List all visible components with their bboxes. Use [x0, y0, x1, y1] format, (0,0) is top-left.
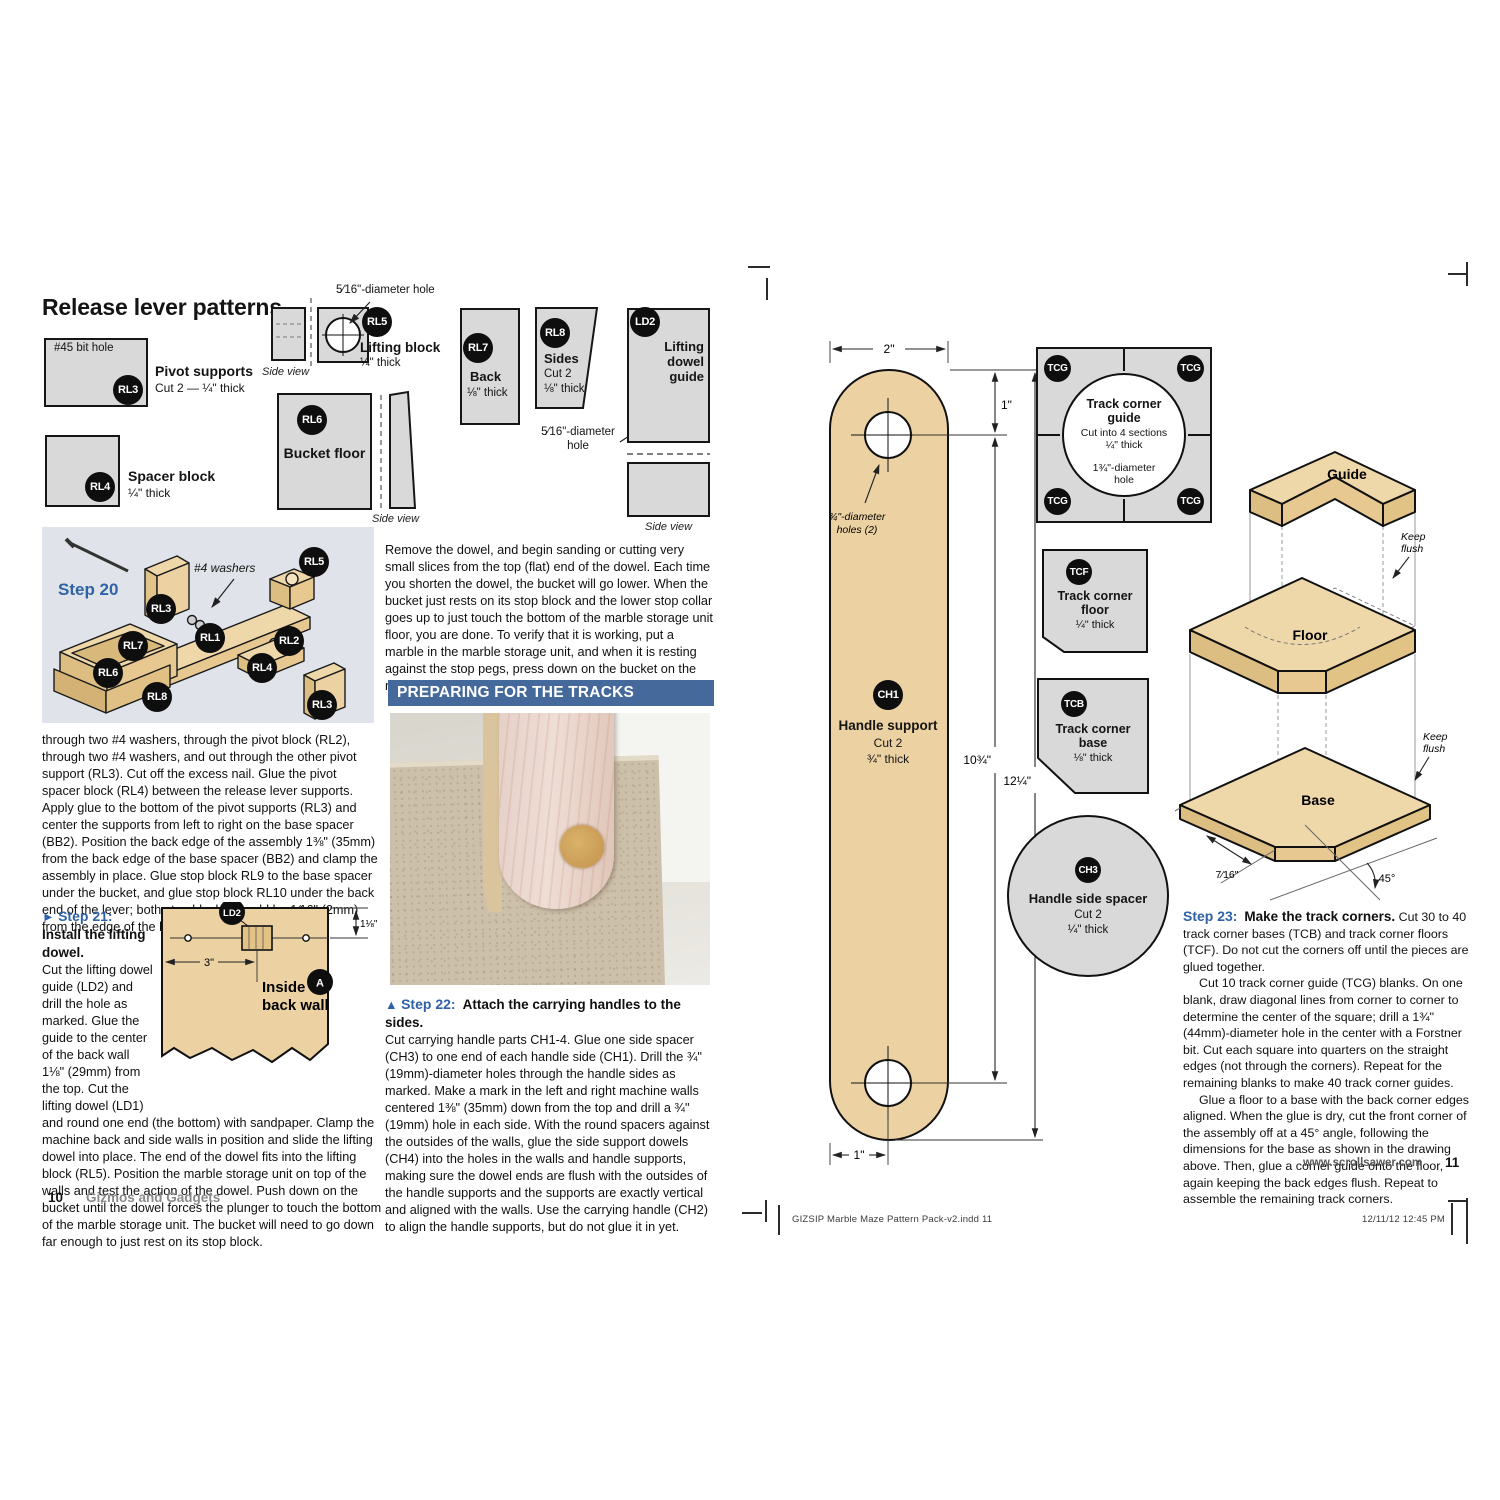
- slug-divider-right: [1451, 1203, 1453, 1235]
- step22-body: Cut carrying handle parts CH1-4. Glue on…: [385, 1033, 709, 1234]
- tcg-spec-1: Cut into 4 sections: [1064, 427, 1184, 439]
- iso-guide-label: Guide: [1327, 466, 1367, 482]
- step23-p2: Cut 10 track corner guide (TCG) blanks. …: [1183, 975, 1475, 1091]
- step21-wall-label-2: back wall: [262, 997, 329, 1014]
- rl5-hole-label: 5⁄16"-diameter hole: [336, 284, 496, 296]
- tcf-badge: TCF: [1066, 559, 1092, 585]
- step20-badge-rl3a: RL3: [146, 594, 176, 624]
- tcb-name: Track cornerbase: [1037, 722, 1149, 750]
- rl8-badge: RL8: [540, 318, 570, 348]
- iso-guide-piece: [1250, 452, 1415, 526]
- ch1-holes-label-1: ¾"-diameter: [829, 511, 886, 523]
- page-right: 2" 1" 10¾" 12¼": [755, 260, 1483, 1200]
- rl5-name: Lifting block: [360, 340, 440, 356]
- rl4-name: Spacer block: [128, 468, 215, 484]
- rl7-box: [460, 308, 520, 425]
- ch1-dim-top: 2": [884, 342, 895, 356]
- step20-badge-rl6: RL6: [93, 658, 123, 688]
- step20-panel: Step 20 #4 washers RL5 RL3 RL1 RL2 RL7 R…: [42, 527, 374, 723]
- crop-mark-tr-h: [1448, 273, 1468, 275]
- iso-keep-flush-1a: Keep: [1401, 531, 1426, 543]
- step21-wall-drawing: LD2 3" Inside back wall A 1⅛": [160, 902, 382, 1098]
- step21-wall-label-1: Inside: [262, 979, 305, 996]
- tcg-name: Track cornerguide: [1064, 397, 1184, 425]
- middle-paragraph: Remove the dowel, and begin sanding or c…: [385, 542, 715, 695]
- iso-dim-angle: 45°: [1379, 873, 1396, 885]
- step20-badge-rl1: RL1: [195, 623, 225, 653]
- ch1-thick: ¾" thick: [808, 752, 968, 766]
- tcf-name: Track cornerfloor: [1042, 589, 1148, 617]
- step23-title: Step 23:: [1183, 908, 1237, 924]
- step22-title: Step 22:: [401, 996, 455, 1012]
- crop-mark-br-h: [1448, 1200, 1468, 1202]
- ch1-dim-outer: 12¼": [1003, 774, 1031, 788]
- rl4-spec: ¼" thick: [128, 486, 170, 500]
- dowel-guide-shape: [242, 926, 272, 950]
- crop-mark-tl-v: [766, 278, 768, 300]
- tcg-hole: Track cornerguide Cut into 4 sections ¼"…: [1062, 373, 1186, 497]
- rl6-badge: RL6: [297, 405, 327, 435]
- iso-keep-flush-1b: flush: [1401, 543, 1423, 555]
- ch3-piece: CH3 Handle side spacer Cut 2 ¼" thick: [1007, 815, 1169, 977]
- rl7-name: Back: [470, 370, 501, 385]
- rl5-badge: RL5: [362, 307, 392, 337]
- step21-marker: ►: [42, 910, 55, 924]
- ch1-holes-label-2: holes (2): [837, 524, 878, 536]
- ch3-badge: CH3: [1075, 857, 1101, 883]
- rl5-spec: ¼" thick: [360, 357, 401, 371]
- rl3-name: Pivot supports: [155, 363, 253, 379]
- rl5-side-view-label: Side view: [262, 366, 309, 378]
- ch1-drawing: 2" 1" 10¾" 12¼": [795, 335, 1055, 1180]
- crop-mark-tr-v: [1466, 262, 1468, 286]
- tcg-badge-tr: TCG: [1177, 355, 1204, 382]
- tcg-name-1: Track corner: [1086, 397, 1161, 411]
- tcg-hole-label-2: hole: [1114, 474, 1134, 486]
- step20-badge-rl8: RL8: [142, 682, 172, 712]
- tcf-piece: TCF Track cornerfloor ¼" thick: [1042, 549, 1148, 653]
- wall-hole-right: [303, 935, 309, 941]
- step21-subtitle: Install the lifting dowel.: [42, 927, 146, 960]
- ch1-dim-upper: 1": [1001, 398, 1012, 412]
- step23-subtitle: Make the track corners.: [1244, 909, 1395, 924]
- iso-floor-label: Floor: [1293, 627, 1329, 643]
- tcb-badge: TCB: [1061, 691, 1087, 717]
- step21-dim-3in: 3": [204, 957, 214, 969]
- ld2-hole-label-2: hole: [532, 440, 624, 452]
- ch3-name: Handle side spacer: [1009, 891, 1167, 906]
- slug-divider-left: [778, 1205, 780, 1235]
- rl4-badge: RL4: [85, 472, 115, 502]
- iso-keep-flush-2b: flush: [1423, 743, 1445, 755]
- tcg-name-2: guide: [1107, 411, 1140, 425]
- tcg-spec-2: ¼" thick: [1064, 439, 1184, 451]
- print-timestamp: 12/11/12 12:45 PM: [1295, 1214, 1445, 1225]
- tcb-name-1: Track corner: [1055, 722, 1130, 736]
- rl8-spec-cut: Cut 2: [544, 368, 572, 382]
- tcg-hole-label-1: 1¾"-diameter: [1093, 462, 1156, 474]
- rl3-hole-label: #45 bit hole: [54, 342, 113, 354]
- page-number-right: 11: [1445, 1155, 1459, 1170]
- step20-label: Step 20: [58, 580, 118, 600]
- step20-badge-rl7: RL7: [118, 631, 148, 661]
- website-url: www.scrollsawer.com: [1303, 1157, 1422, 1169]
- ld2-name: Lifting dowel guide: [640, 340, 704, 385]
- tcg-badge-tl: TCG: [1044, 355, 1071, 382]
- rl6-name: Bucket floor: [277, 445, 372, 461]
- tcg-cut-line-left: [1038, 434, 1060, 436]
- rl5-side-view-shape: [272, 308, 305, 360]
- crop-mark-tl-h: [748, 266, 770, 268]
- ch1-dim-bottom: 1": [854, 1148, 865, 1162]
- step20-badge-rl4: RL4: [247, 653, 277, 683]
- tcg-badge-bl: TCG: [1044, 488, 1071, 515]
- tcb-spec: ⅛" thick: [1037, 752, 1149, 764]
- ch1-badge: CH1: [873, 680, 903, 710]
- step21-dim-118: 1⅛": [360, 919, 378, 930]
- tcf-spec: ¼" thick: [1042, 619, 1148, 631]
- page-number-left: 10: [48, 1190, 63, 1205]
- step22-marker: ▲: [385, 998, 398, 1012]
- photo-wood-grain: [499, 713, 614, 909]
- magazine-title: Gizmos and Gadgets: [86, 1190, 220, 1205]
- tcg-cut-line-top: [1123, 349, 1125, 371]
- step21-a-badge: A: [316, 978, 324, 990]
- step20-badge-rl2: RL2: [274, 626, 304, 656]
- step21-title: Step 21:: [58, 908, 112, 924]
- tcf-name-1: Track corner: [1057, 589, 1132, 603]
- rl3-spec: Cut 2 — ¼" thick: [155, 381, 245, 395]
- magazine-spread: Release lever patterns: [0, 0, 1500, 1500]
- page-left: Release lever patterns: [40, 280, 715, 1215]
- ch3-cut: Cut 2: [1009, 909, 1167, 921]
- ld2-side-view-label: Side view: [645, 521, 692, 533]
- ch1-cut: Cut 2: [808, 736, 968, 750]
- tcf-name-2: floor: [1081, 603, 1109, 617]
- middle-paragraph-text: Remove the dowel, and begin sanding or c…: [385, 542, 715, 695]
- step20-badge-rl5: RL5: [299, 547, 329, 577]
- rl7-spec: ⅛" thick: [467, 387, 508, 401]
- tcb-name-2: base: [1079, 736, 1108, 750]
- rl7-badge: RL7: [463, 333, 493, 363]
- tcg-hole-label: 1¾"-diameterhole: [1064, 462, 1184, 486]
- step22-photo: [390, 713, 710, 985]
- crop-mark-br-v: [1466, 1198, 1468, 1244]
- crop-mark-bl-v: [765, 1200, 767, 1222]
- tcg-cut-line-bottom: [1123, 499, 1125, 521]
- step22-section: ▲ Step 22: Attach the carrying handles t…: [385, 996, 718, 1236]
- section-banner: PREPARING FOR THE TRACKS: [388, 680, 714, 706]
- step20-washers-label: #4 washers: [194, 561, 255, 575]
- photo-lifting-dowel: [499, 713, 614, 909]
- rl3-badge: RL3: [113, 375, 143, 405]
- iso-keep-flush-2a: Keep: [1423, 731, 1448, 743]
- rl8-name: Sides: [544, 352, 579, 367]
- ld2-badge: LD2: [630, 307, 660, 337]
- rl6-side-view-label: Side view: [372, 513, 419, 525]
- print-slug: GIZSIP Marble Maze Pattern Pack-v2.indd …: [792, 1214, 992, 1225]
- wall-hole-left: [185, 935, 191, 941]
- step21-figure: LD2 3" Inside back wall A 1⅛": [160, 902, 382, 1098]
- step20-badge-rl3b: RL3: [307, 690, 337, 720]
- ch1-name: Handle support: [808, 718, 968, 734]
- tcg-badge-br: TCG: [1177, 488, 1204, 515]
- step22-text: ▲ Step 22: Attach the carrying handles t…: [385, 996, 718, 1236]
- rl6-side-view-shape: [390, 392, 415, 508]
- ld2-hole-label-1: 5⁄16"-diameter: [532, 426, 624, 438]
- crop-mark-bl-h: [742, 1212, 762, 1214]
- rl8-spec-thick: ⅛" thick: [544, 383, 585, 397]
- photo-dowel-hole: [560, 825, 605, 869]
- step23-p3: Glue a floor to a base with the back cor…: [1183, 1092, 1475, 1208]
- track-corner-assembly-drawing: Guide Floor Base Keep flush Keep: [1175, 430, 1475, 910]
- ld2-side-view-box: [627, 462, 710, 517]
- step21-fig-badge: LD2: [223, 908, 241, 919]
- tcb-piece: TCB Track cornerbase ⅛" thick: [1037, 678, 1149, 794]
- iso-dim-cut: 7⁄16": [1216, 869, 1239, 881]
- step23-p1: Step 23: Make the track corners. Cut 30 …: [1183, 908, 1475, 975]
- ch3-thick: ¼" thick: [1009, 924, 1167, 936]
- iso-base-label: Base: [1301, 792, 1335, 808]
